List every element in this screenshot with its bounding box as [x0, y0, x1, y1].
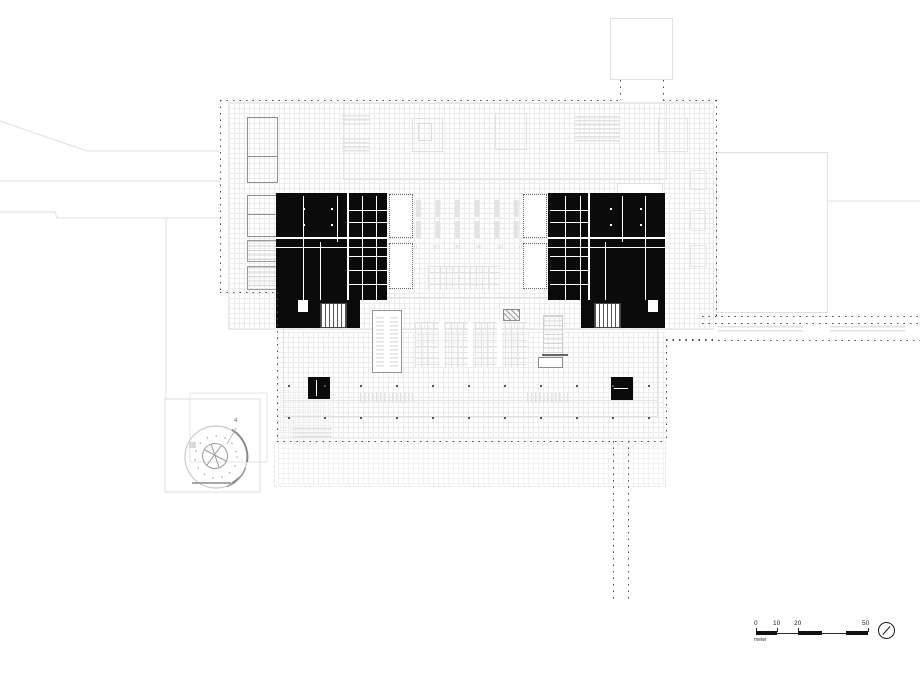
apron-core-east	[611, 377, 633, 400]
shelf-block-2	[342, 138, 370, 152]
east-kiosk-1	[690, 170, 707, 190]
meeting-room	[372, 310, 402, 373]
east-wall	[622, 196, 623, 242]
west-cell-line	[349, 256, 387, 257]
detail-circle-group	[165, 393, 267, 492]
lower-plate-edge	[283, 400, 658, 401]
east-kiosk-3	[690, 245, 707, 267]
detail-number-label: 4	[234, 417, 238, 424]
scale-bar: 0 10 20 50 meter	[750, 616, 875, 644]
west-cell-line	[349, 210, 387, 211]
east-wall	[605, 242, 606, 300]
west-corridor-2	[276, 247, 387, 248]
meeting-chairs-right	[390, 317, 398, 367]
table-gap	[439, 322, 444, 367]
meeting-chairs-left	[376, 317, 384, 367]
boundary-step-west	[220, 292, 277, 293]
stair-landing-rect	[538, 357, 563, 368]
column-dot	[640, 208, 642, 210]
scale-label-0: 0	[754, 620, 758, 627]
scale-tick	[777, 628, 778, 632]
scale-segment-2	[798, 631, 822, 635]
boundary-south	[277, 441, 666, 442]
core-wall	[614, 388, 628, 389]
atrium-marker: (X)	[433, 243, 439, 251]
boundary-ext-east-2	[702, 323, 920, 324]
west-wall	[303, 196, 304, 300]
floor-plan-canvas: 4 () (X) (X) (X) (X) ()	[0, 0, 920, 690]
column-dot	[303, 208, 305, 210]
scale-unit-label: meter	[754, 637, 767, 643]
scale-label-50: 50	[862, 620, 869, 627]
table-gap	[497, 322, 502, 367]
entry-mat-1	[360, 393, 413, 402]
south-strip-1	[718, 326, 803, 334]
courtyard-se	[523, 243, 547, 289]
east-cell-line	[550, 284, 588, 285]
east-ext-room	[648, 300, 658, 312]
apron-dashed-rect	[274, 441, 666, 487]
east-wall	[645, 196, 646, 300]
boundary-top-east	[663, 100, 716, 101]
south-strip-2	[830, 326, 905, 334]
service-hatch-box	[503, 309, 520, 321]
room-cluster-4	[658, 118, 688, 152]
boundary-top-west	[220, 100, 620, 101]
north-needle	[882, 626, 890, 635]
scale-label-10: 10	[773, 620, 780, 627]
courtyard-ne	[523, 194, 547, 238]
table-gap	[468, 322, 473, 367]
path-dotted-east	[628, 441, 629, 603]
north-annex-building	[610, 18, 673, 80]
east-wall	[588, 193, 590, 300]
north-arrow-icon	[878, 622, 895, 639]
path-dotted-west	[613, 441, 614, 603]
east-cell-line	[550, 270, 588, 271]
boundary-east	[716, 100, 717, 318]
west-annex-room-1	[247, 117, 278, 183]
west-annex-stair-1	[247, 240, 277, 262]
west-cell-line	[349, 284, 387, 285]
east-kiosk-2	[690, 210, 706, 231]
west-annex-room-2	[247, 195, 277, 237]
room-cluster-3	[574, 116, 620, 142]
west-cell-line	[349, 222, 387, 223]
atrium-marker: (X)	[476, 243, 482, 251]
boundary-west-lower	[277, 292, 278, 441]
column-row-2	[288, 417, 662, 419]
east-ext-stair	[594, 303, 621, 328]
west-wall	[337, 196, 338, 242]
east-cell-line	[550, 256, 588, 257]
west-ext-room	[298, 300, 308, 312]
column-dot	[610, 224, 612, 226]
annex-divider	[248, 214, 276, 215]
atrium-seating-row-2	[416, 221, 520, 238]
east-cell-line	[550, 210, 588, 211]
courtyard-sw	[389, 243, 413, 289]
atrium-marker: (X)	[497, 243, 503, 251]
shelf-block-1	[342, 115, 370, 127]
stair-landing-line	[542, 354, 568, 356]
boundary-ext-east-1	[702, 316, 920, 317]
atrium-marker: (X)	[454, 243, 460, 251]
west-wall	[320, 242, 321, 300]
west-corridor	[276, 237, 387, 239]
scale-label-20: 20	[794, 620, 801, 627]
apron-core-west	[308, 377, 330, 399]
column-dot	[331, 208, 333, 210]
column-dot	[640, 224, 642, 226]
annex-divider	[248, 156, 277, 157]
boundary-ext-south	[666, 340, 920, 341]
reading-tables-upper	[428, 266, 500, 290]
column-dot	[331, 224, 333, 226]
west-annex-stair-2	[247, 266, 277, 290]
boundary-east-lower	[666, 339, 667, 441]
atrium-marker: ()	[519, 243, 522, 251]
column-row-1	[288, 385, 662, 387]
entry-mat-3	[292, 428, 332, 438]
boundary-notch-left	[620, 80, 621, 100]
scale-segment-1	[756, 631, 777, 635]
column-dot	[610, 208, 612, 210]
courtyard-nw	[389, 194, 413, 238]
room-cluster-2	[495, 113, 527, 150]
room-cluster-1-inner	[418, 123, 432, 141]
atrium-seating-row-1	[416, 200, 520, 217]
west-wing-extension	[276, 300, 360, 328]
column-dot	[303, 224, 305, 226]
west-cell-line	[349, 270, 387, 271]
west-ext-stair	[320, 303, 347, 328]
atrium-marker: ()	[414, 243, 417, 251]
scale-tick	[868, 628, 869, 632]
reading-tables-lower	[415, 322, 527, 367]
boundary-west	[220, 100, 221, 293]
east-court-rect	[716, 152, 828, 313]
boundary-notch-right	[663, 80, 664, 100]
entry-mat-2	[527, 393, 570, 402]
scale-segment-3	[846, 631, 868, 635]
atrium-marker-row: () (X) (X) (X) (X) ()	[414, 243, 522, 251]
east-cell-line	[550, 222, 588, 223]
core-wall	[316, 380, 317, 396]
